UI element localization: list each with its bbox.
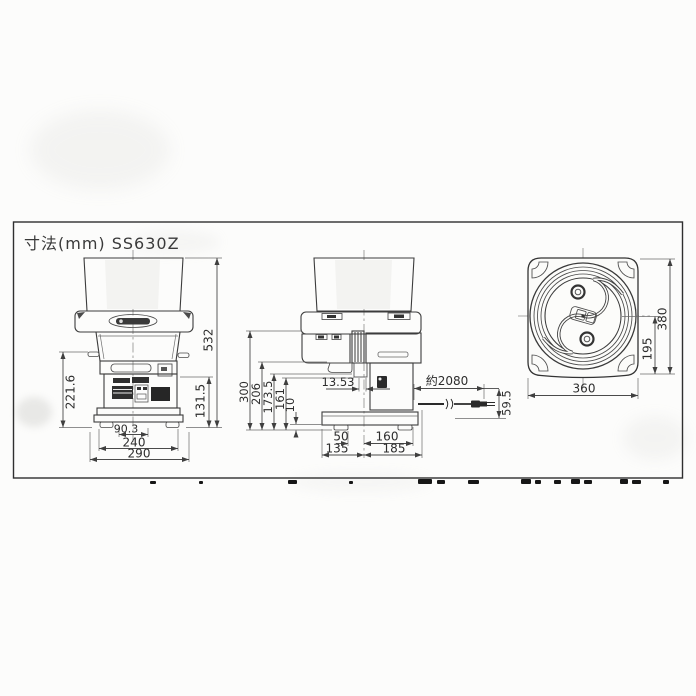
dim-arrowhead <box>272 423 277 430</box>
top-depth-label: 380 <box>656 308 670 331</box>
front-right-pin <box>178 353 189 358</box>
dim-arrowhead <box>215 258 220 265</box>
dim-arrowhead <box>248 331 253 338</box>
sheet-title: 寸法(mm) SS630Z <box>24 230 180 254</box>
dim-arrowhead <box>528 393 535 398</box>
blade-offset-label: 13.53 <box>322 375 355 389</box>
dim-arrowhead <box>284 423 289 430</box>
top-view <box>518 248 650 388</box>
bolt-hole-lower <box>581 333 594 346</box>
control-label-1 <box>113 378 130 383</box>
dim-arrowhead <box>171 446 178 451</box>
fitting-mark <box>334 336 339 339</box>
dim-arrowhead <box>653 367 658 374</box>
fitting-mark <box>318 336 324 339</box>
dim-arrowhead <box>352 387 359 392</box>
dim-arrowhead <box>364 453 371 458</box>
front-bowl-line-right <box>172 334 176 359</box>
ice-spout <box>328 363 352 373</box>
latch-mark <box>327 315 336 318</box>
front-base <box>94 415 183 422</box>
cord-break-symbol <box>446 399 453 409</box>
dim-arrowhead <box>406 441 413 446</box>
power-plug <box>471 401 480 408</box>
dim-arrowhead <box>364 441 371 446</box>
latch-mark <box>394 315 404 319</box>
side-rear-foot <box>398 425 412 430</box>
front-base-height-label: 131.5 <box>194 384 208 418</box>
dim-arrowhead <box>182 457 189 462</box>
dim-arrowhead <box>415 453 422 458</box>
dim-arrowhead <box>61 421 66 428</box>
dim-arrowhead <box>215 421 220 428</box>
side-view <box>301 250 495 458</box>
switch-mark <box>143 387 147 390</box>
cord-length-label: 約2080 <box>426 373 469 388</box>
bolt-hole-upper <box>572 286 585 299</box>
dim-arrowhead <box>248 423 253 430</box>
front-side-box-mark <box>161 367 167 371</box>
front-left-pin <box>88 352 99 357</box>
top-width-label: 360 <box>573 382 596 396</box>
front-total-height-label: 532 <box>202 329 216 352</box>
control-panel-right-block <box>151 387 170 401</box>
front-lid-corner-shade-right <box>183 312 191 319</box>
switch-mark <box>137 387 141 390</box>
side-rear-body <box>366 333 421 363</box>
dim-arrowhead <box>294 417 299 424</box>
cord-height-label: 59.5 <box>500 390 514 416</box>
front-bowl-height-label: 221.6 <box>64 375 78 409</box>
dim-arrowhead <box>284 378 289 385</box>
dim-arrowhead <box>414 386 421 391</box>
side-hopper-highlight <box>335 260 392 309</box>
motor-label-plate <box>377 376 387 388</box>
column-lower-box <box>354 363 367 377</box>
front-bowl-line-left <box>100 334 104 359</box>
front-left-foot <box>100 422 113 428</box>
dim-arrowhead <box>272 374 277 381</box>
dim-arrowhead <box>668 259 673 266</box>
dim-arrowhead <box>99 446 106 451</box>
vent-slot <box>378 352 408 357</box>
side-dimensions: 300 206 173.5 161 10 13.53 <box>237 331 514 458</box>
dim-arrowhead <box>61 352 66 359</box>
front-base-width-label: 290 <box>128 447 151 461</box>
front-base-flange <box>97 408 180 415</box>
dim-arrowhead <box>90 457 97 462</box>
top-center-rear-label: 195 <box>641 338 655 361</box>
power-plug-tip <box>480 402 487 407</box>
dim-arrowhead <box>631 393 638 398</box>
control-label-2 <box>132 377 149 383</box>
side-front-body <box>302 334 350 363</box>
front-lid-corner-shade-left <box>77 312 85 319</box>
dim-arrowhead <box>294 431 299 438</box>
dim-arrowhead <box>477 386 484 391</box>
front-hopper-highlight <box>105 260 160 309</box>
brand-badge-dot <box>119 319 123 323</box>
dim-arrowhead <box>207 377 212 384</box>
dimension-drawing: 532 131.5 221.6 90.3 240 290 <box>0 0 696 696</box>
dim-arrowhead <box>260 423 265 430</box>
base-rear-label: 185 <box>383 442 406 456</box>
side-base-plate-label: 10 <box>283 398 297 413</box>
side-base <box>322 412 418 425</box>
dim-arrowhead <box>207 421 212 428</box>
dim-arrowhead <box>260 362 265 369</box>
scanned-dimension-sheet: 532 131.5 221.6 90.3 240 290 <box>0 0 696 696</box>
dim-arrowhead <box>357 453 364 458</box>
label-dot <box>379 378 382 381</box>
front-view <box>75 250 193 442</box>
front-drawer <box>111 364 151 372</box>
front-right-foot <box>166 422 179 428</box>
dim-arrowhead <box>668 367 673 374</box>
motor-body <box>370 363 413 410</box>
